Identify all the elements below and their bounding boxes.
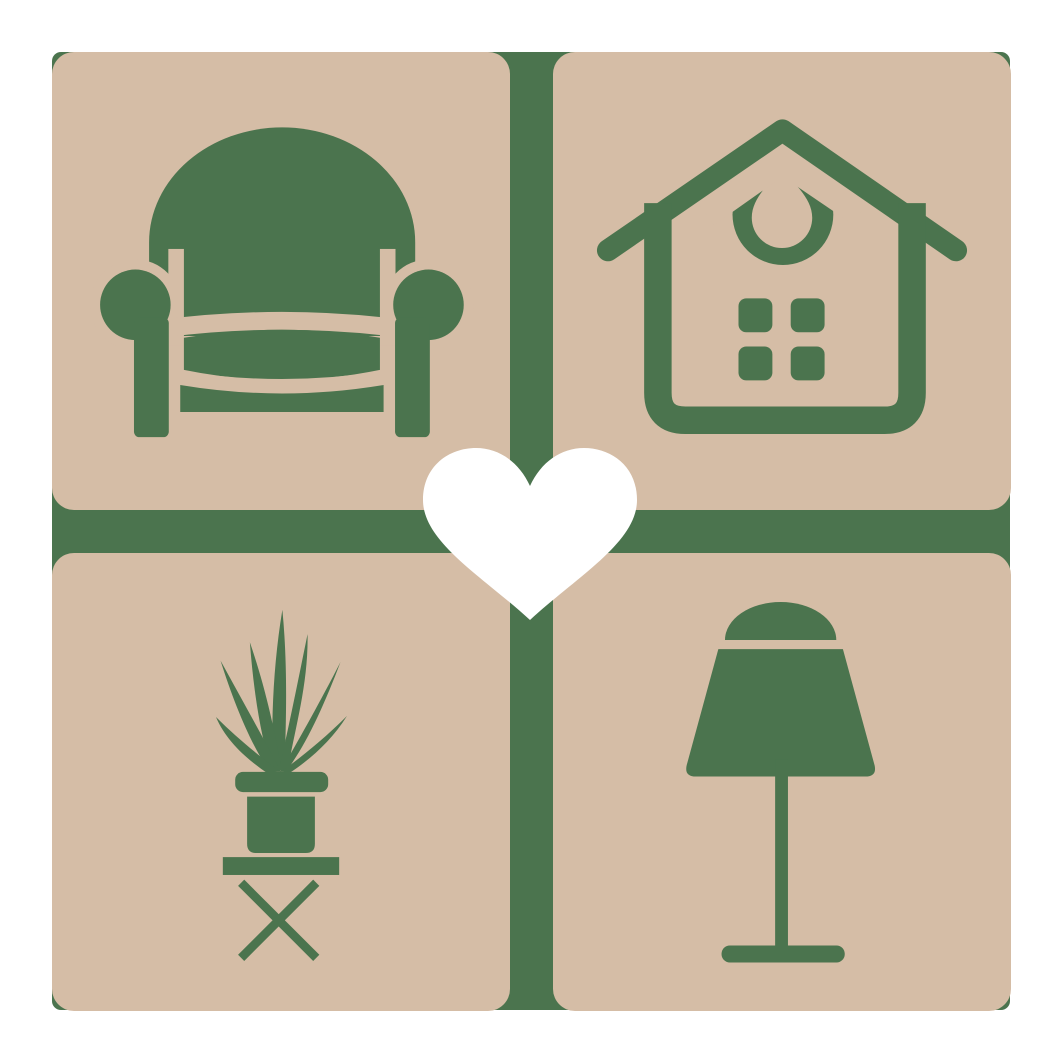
- logo-canvas: [0, 0, 1063, 1063]
- tile-armchair: [52, 52, 510, 510]
- heart-icon: [423, 446, 637, 623]
- armchair-icon: [52, 52, 510, 510]
- house-icon: [553, 52, 1011, 510]
- tile-house: [553, 52, 1011, 510]
